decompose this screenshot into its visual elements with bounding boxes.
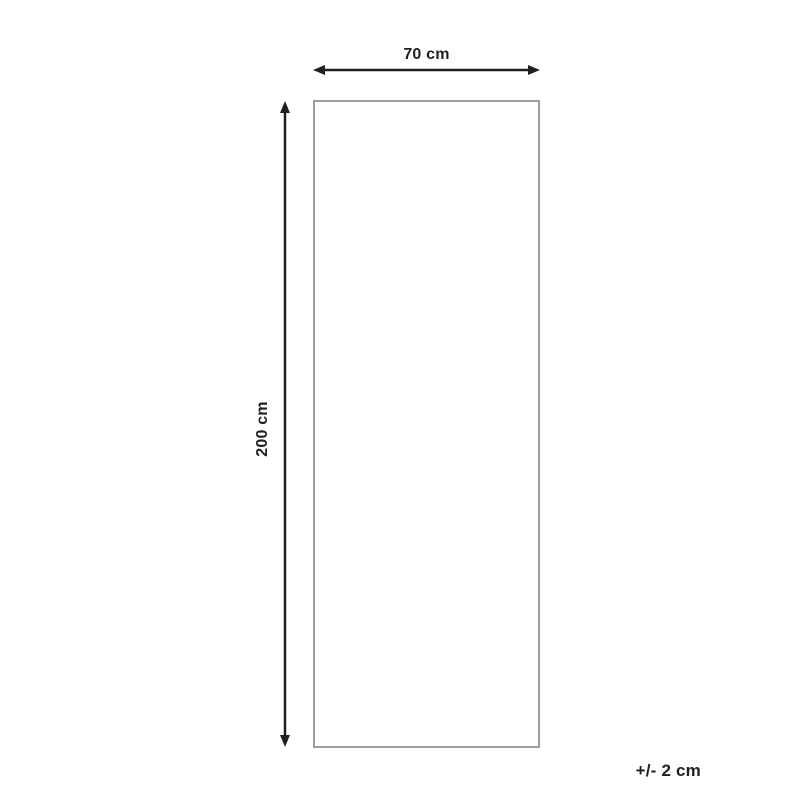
- height-dimension-label: 200 cm: [253, 389, 273, 469]
- dimension-diagram: 70 cm 200 cm +/- 2 cm: [0, 0, 800, 800]
- width-dimension-label: 70 cm: [313, 46, 540, 64]
- product-outline-rect: [314, 101, 539, 747]
- tolerance-label: +/- 2 cm: [636, 761, 701, 781]
- width-arrowhead-left-icon: [313, 65, 325, 75]
- diagram-graphics: [0, 0, 800, 800]
- width-arrowhead-right-icon: [528, 65, 540, 75]
- height-arrowhead-bottom-icon: [280, 735, 290, 747]
- height-arrowhead-top-icon: [280, 101, 290, 113]
